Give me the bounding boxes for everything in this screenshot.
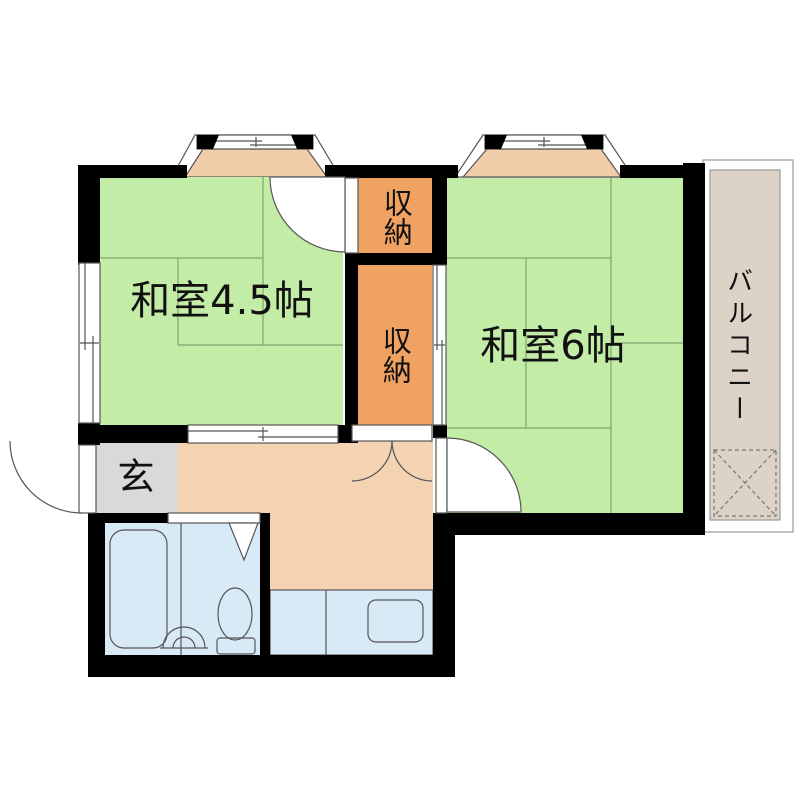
wall-closet-divider bbox=[345, 253, 445, 265]
wall-kitchen-east bbox=[433, 513, 455, 677]
room-label-entrance: 玄 bbox=[118, 459, 155, 498]
wall-room2-east bbox=[683, 163, 705, 535]
bay-window-right bbox=[455, 135, 633, 177]
wall-room1-bottom bbox=[78, 425, 188, 443]
wall-top-middle bbox=[325, 165, 458, 178]
closet-south-door bbox=[352, 425, 432, 441]
bay-window-sill bbox=[185, 149, 327, 177]
floor-plan-svg bbox=[0, 0, 800, 800]
room-label-closet-south: 収納 bbox=[380, 326, 410, 384]
wall-bathroom-east bbox=[260, 513, 270, 677]
room-label-washitsu-4-5: 和室4.5帖 bbox=[130, 280, 314, 322]
wall-closet-west bbox=[345, 253, 358, 425]
entrance-door bbox=[79, 445, 96, 513]
bay-window-sill bbox=[463, 149, 621, 177]
floor-plan: 和室4.5帖 和室6帖 収納 収納 玄 バルコニー bbox=[0, 0, 800, 800]
room-label-washitsu-6: 和室6帖 bbox=[480, 325, 625, 367]
closet-north-door bbox=[345, 178, 358, 253]
wall-bottom bbox=[88, 655, 455, 677]
room-label-balcony: バルコニー bbox=[723, 267, 750, 427]
room-label-closet-north: 収納 bbox=[381, 188, 411, 246]
wall-bathroom-west bbox=[88, 513, 105, 677]
entrance-door-swing bbox=[10, 441, 82, 513]
room2-door bbox=[436, 438, 447, 513]
bathroom-door bbox=[168, 513, 260, 523]
wall-room2-bottom bbox=[433, 513, 705, 535]
wall-closet-east bbox=[432, 178, 447, 265]
wall-left-upper bbox=[78, 165, 100, 265]
wall-room2-west-post bbox=[433, 425, 447, 438]
